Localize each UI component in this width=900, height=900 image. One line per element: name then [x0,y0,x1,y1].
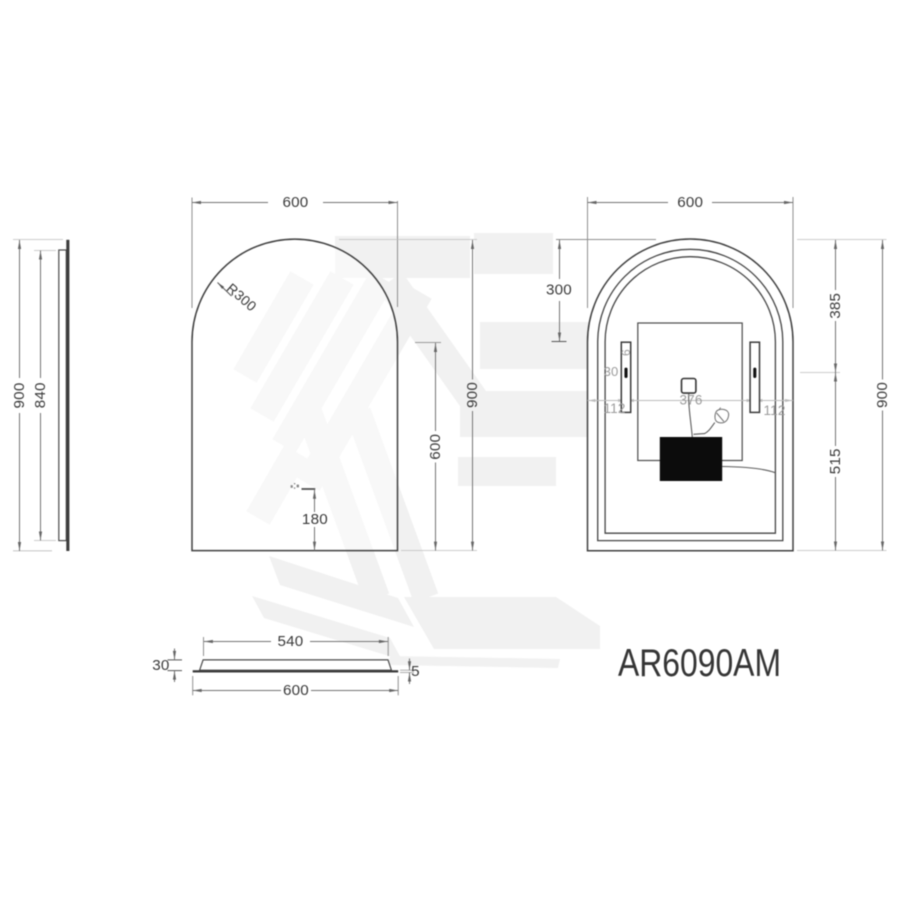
svg-text:540: 540 [278,633,304,650]
svg-text:900: 900 [464,382,481,408]
svg-text:6: 6 [619,349,633,356]
svg-text:30: 30 [604,364,619,379]
svg-text:112: 112 [763,403,785,418]
svg-text:840: 840 [32,382,49,408]
svg-text:900: 900 [874,382,891,408]
svg-text:515: 515 [827,448,844,474]
svg-text:600: 600 [283,682,309,699]
svg-text:385: 385 [827,293,844,319]
svg-text:112: 112 [603,401,625,416]
svg-text:180: 180 [302,511,328,528]
svg-text:AR6090AM: AR6090AM [618,642,781,685]
svg-text:300: 300 [546,282,572,299]
svg-text:30: 30 [152,657,169,674]
svg-text:600: 600 [677,194,703,211]
svg-text:376: 376 [679,393,702,408]
svg-text:5: 5 [411,663,420,680]
svg-text:600: 600 [427,434,444,460]
svg-text:900: 900 [11,383,28,409]
svg-text:600: 600 [283,194,309,211]
